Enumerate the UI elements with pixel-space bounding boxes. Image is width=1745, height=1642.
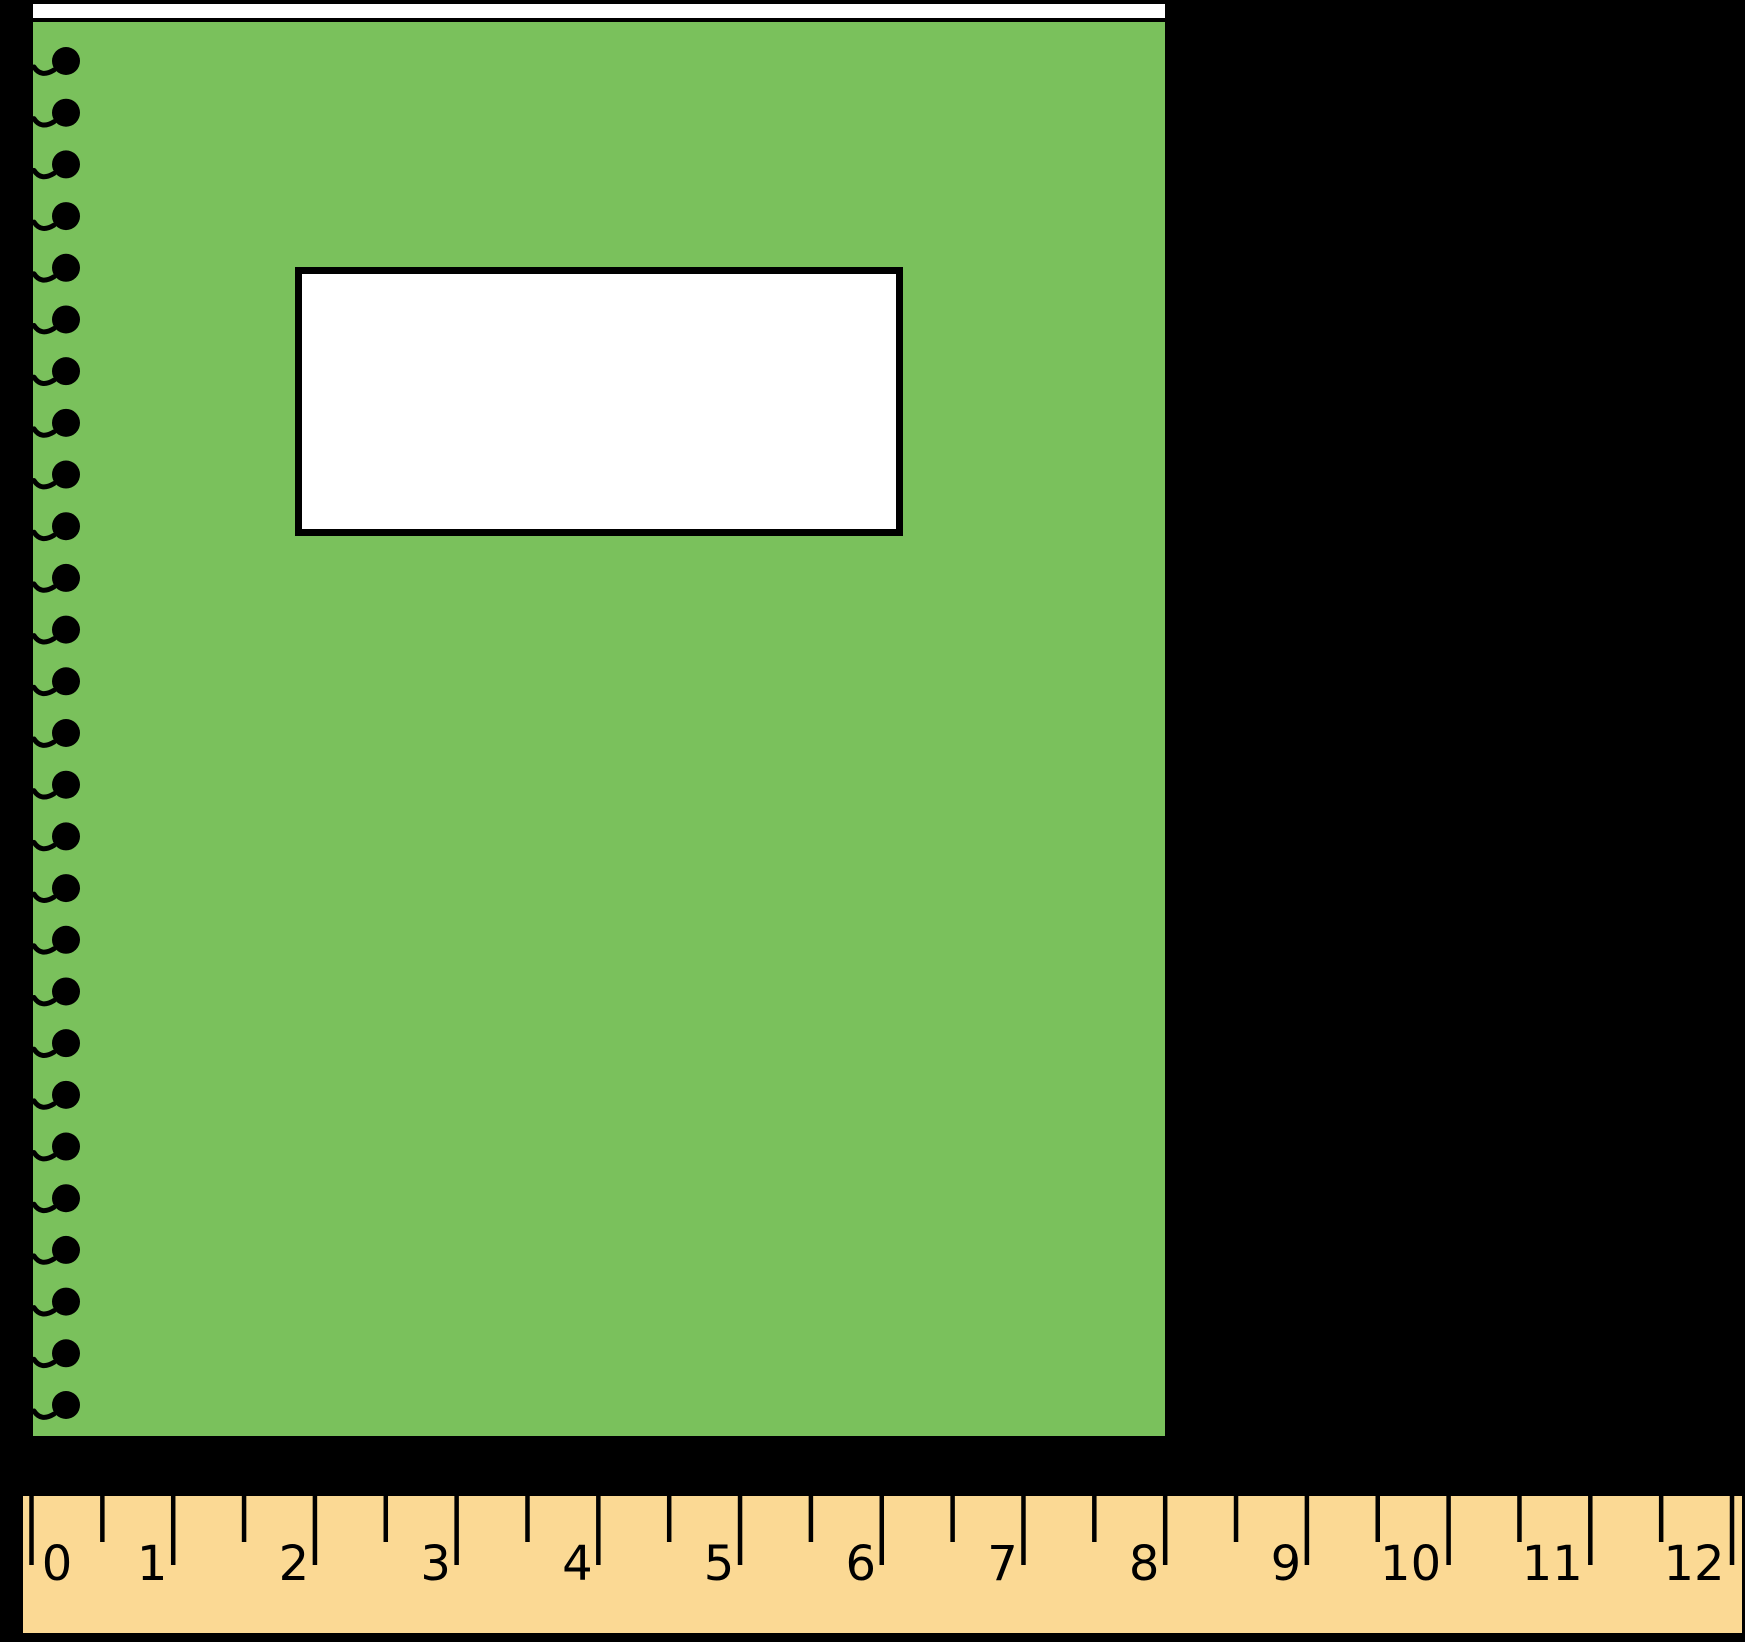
spiral-ring [34,564,80,592]
ruler-number: 2 [279,1536,310,1592]
ruler-number: 5 [704,1536,735,1592]
ruler-number: 3 [420,1536,451,1592]
spiral-ring [34,254,80,282]
spiral-ring-dot [52,667,80,695]
spiral-ring [34,977,80,1005]
spiral-ring-dot [52,512,80,540]
ruler-number: 8 [1129,1536,1160,1592]
ruler-number: 11 [1522,1536,1583,1592]
spiral-ring-dot [52,1288,80,1316]
spiral-ring-tail [34,1256,54,1262]
spiral-ring [34,1339,80,1367]
spiral-ring-tail [34,1049,54,1055]
spiral-ring-dot [52,202,80,230]
spiral-ring-tail [34,429,54,435]
ruler-number: 6 [845,1536,876,1592]
spiral-ring [34,1236,80,1264]
spiral-ring-dot [52,1339,80,1367]
spiral-ring-dot [52,719,80,747]
spiral-ring-tail [34,119,54,125]
spiral-ring-tail [34,1153,54,1159]
spiral-ring-dot [52,1081,80,1109]
spiral-ring-tail [34,894,54,900]
spiral-ring-tail [34,584,54,590]
ruler-number: 0 [42,1536,73,1592]
spiral-ring [34,305,80,333]
spiral-ring-tail [34,274,54,280]
ruler-number: 1 [137,1536,168,1592]
spiral-ring-tail [34,170,54,176]
notebook-label [295,267,903,536]
spiral-ring-tail [34,1204,54,1210]
spiral-ring [34,99,80,127]
spiral-ring-dot [52,1236,80,1264]
ruler-number: 10 [1380,1536,1441,1592]
ruler-scale: 0123456789101112 [23,1496,1742,1633]
ruler-number: 12 [1663,1536,1724,1592]
spiral-ring-tail [34,791,54,797]
spiral-ring-dot [52,1133,80,1161]
spiral-ring-dot [52,564,80,592]
spiral-ring-dot [52,305,80,333]
spiral-ring [34,47,80,75]
spiral-ring-tail [34,946,54,952]
spiral-ring-tail [34,377,54,383]
spiral-ring [34,822,80,850]
spiral-ring-dot [52,1184,80,1212]
spiral-ring-dot [52,150,80,178]
spiral-ring-dot [52,977,80,1005]
spiral-ring [34,150,80,178]
spiral-ring-dot [52,822,80,850]
spiral-ring-tail [34,687,54,693]
spiral-ring-tail [34,739,54,745]
spiral-ring [34,667,80,695]
notebook-cover [33,22,1165,1436]
spiral-ring-dot [52,771,80,799]
spiral-ring-dot [52,254,80,282]
spiral-ring-dot [52,926,80,954]
spiral-ring [34,357,80,385]
spiral-ring [34,616,80,644]
spiral-ring [34,926,80,954]
spiral-ring-dot [52,409,80,437]
spiral-ring [34,771,80,799]
spiral-ring-tail [34,532,54,538]
notebook-measurement-diagram: 0123456789101112 [0,0,1745,1642]
ruler-number: 7 [987,1536,1018,1592]
spiral-ring-tail [34,1411,54,1417]
spiral-ring-tail [34,997,54,1003]
spiral-ring [34,461,80,489]
spiral-ring [34,409,80,437]
spiral-ring-dot [52,47,80,75]
spiral-ring [34,512,80,540]
spiral-binding [0,0,120,1642]
spiral-ring-dot [52,357,80,385]
ruler-number: 4 [562,1536,593,1592]
spiral-ring-dot [52,99,80,127]
notebook-pages-strip [33,4,1165,18]
spiral-ring [34,1133,80,1161]
spiral-ring [34,1081,80,1109]
spiral-ring-tail [34,67,54,73]
spiral-ring [34,202,80,230]
spiral-ring-dot [52,1391,80,1419]
spiral-ring-tail [34,636,54,642]
spiral-ring [34,874,80,902]
spiral-ring [34,1288,80,1316]
ruler: 0123456789101112 [23,1496,1742,1633]
spiral-ring-dot [52,461,80,489]
spiral-ring-tail [34,1308,54,1314]
spiral-ring-tail [34,325,54,331]
spiral-ring [34,1391,80,1419]
spiral-ring-dot [52,616,80,644]
spiral-ring-dot [52,1029,80,1057]
spiral-ring-tail [34,1359,54,1365]
spiral-ring-tail [34,1101,54,1107]
spiral-ring-tail [34,842,54,848]
spiral-ring [34,719,80,747]
spiral-ring [34,1029,80,1057]
ruler-number: 9 [1271,1536,1302,1592]
spiral-ring-tail [34,481,54,487]
spiral-ring [34,1184,80,1212]
spiral-ring-tail [34,222,54,228]
spiral-ring-dot [52,874,80,902]
